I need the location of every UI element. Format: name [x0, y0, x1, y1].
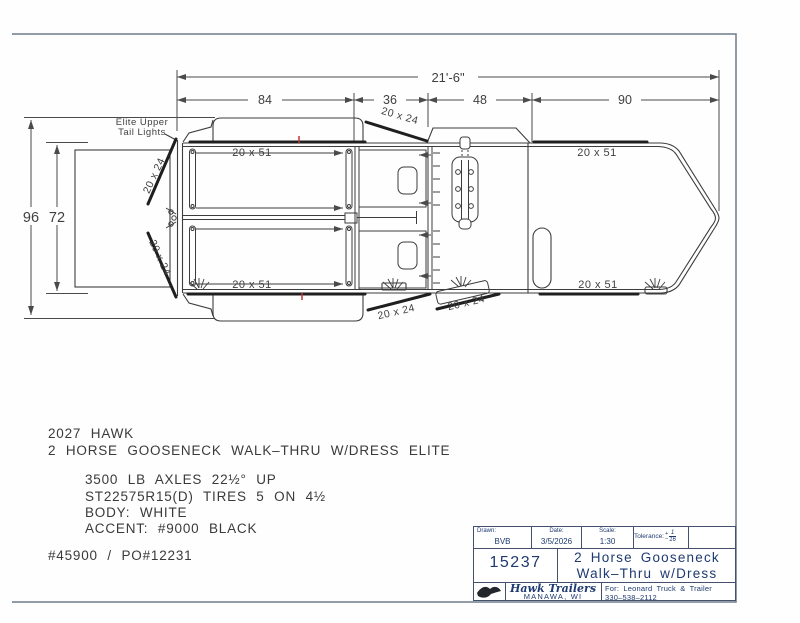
drawing-number: 15237 [474, 554, 557, 572]
hawk-logo [476, 584, 503, 605]
tolerance-minus: − [665, 537, 668, 542]
company-city: MANAWA, WI [505, 592, 601, 601]
window-label-top-nose: 20 x 51 [577, 147, 617, 159]
tail-lights-label-2: Tail Lights [118, 127, 166, 138]
wall-pegs [433, 153, 440, 283]
date-label: Date: [532, 528, 581, 534]
customer-phone: 330–538–2112 [605, 593, 657, 602]
red-marks [299, 136, 302, 300]
scale-value: 1:30 [582, 537, 633, 546]
note-model: 2 HORSE GOOSENECK WALK–THRU W/DRESS ELIT… [48, 443, 450, 458]
dim-section-90: 90 [618, 93, 632, 107]
door-label-front-top: 20 x 24 [380, 105, 420, 127]
title-line-2: Walk–Thru w/Dress [557, 566, 737, 581]
door-label-rear-top: 20 x 24 [141, 156, 168, 195]
tolerance-label: Tolerance: [634, 533, 664, 540]
tolerance-numerator: 1 [669, 530, 676, 537]
date-value: 3/5/2026 [532, 537, 581, 546]
dim-section-84: 84 [258, 93, 272, 107]
dim-rear-opening: 72 [49, 210, 65, 226]
drawn-label: Drawn: [477, 528, 496, 534]
door-label-side-2: 20 x 24 [446, 293, 486, 313]
dress-room-closet [533, 228, 551, 288]
tolerance-cell: Tolerance: +− 116 [634, 530, 688, 543]
drawn-value: BVB [474, 537, 531, 546]
dim-overall-length: 21'-6" [431, 70, 465, 85]
front-door-open-top [366, 122, 427, 141]
title-line-1: 2 Horse Gooseneck [557, 550, 737, 565]
note-model-year: 2027 HAWK [48, 426, 134, 441]
ramp-spring-cluster [166, 208, 176, 228]
dimension-labels: 21'-6" 84 36 48 90 96 72 [18, 70, 641, 226]
bottom-window-frame [213, 294, 363, 321]
top-window-frame [213, 118, 363, 143]
spec-body-color: BODY: WHITE [85, 505, 187, 520]
dim-section-48: 48 [473, 93, 487, 107]
scale-label: Scale: [582, 528, 633, 534]
window-label-bottom-nose: 20 x 51 [578, 279, 618, 291]
window-label-top-rear: 20 x 51 [232, 147, 272, 159]
drawing-sheet: 21'-6" 84 36 48 90 96 72 [0, 0, 800, 618]
door-label-rear-bottom: 20 x 24 [146, 238, 173, 277]
dim-overall-width: 96 [23, 210, 39, 226]
tolerance-denominator: 16 [669, 537, 676, 543]
spec-tires: ST22575R15(D) TIRES 5 ON 4½ [85, 489, 326, 504]
title-block: Drawn: BVB Date: 3/5/2026 Scale: 1:30 To… [473, 526, 736, 601]
spec-axles: 3500 LB AXLES 22½° UP [85, 472, 277, 487]
window-label-bottom-rear: 20 x 51 [232, 279, 272, 291]
spec-accent-color: ACCENT: #9000 BLACK [85, 521, 257, 536]
order-number: #45900 / PO#12231 [48, 548, 192, 563]
hinge-posts [190, 149, 353, 286]
tack-rack [452, 137, 478, 229]
